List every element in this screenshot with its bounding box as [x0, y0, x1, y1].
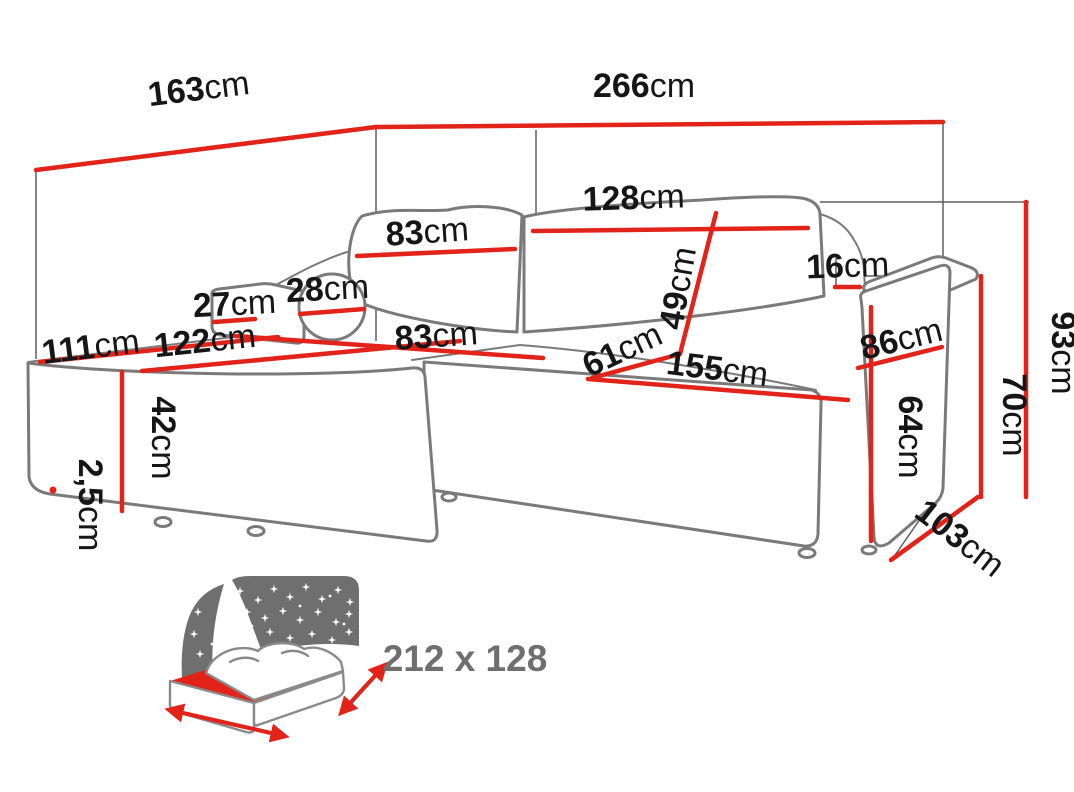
- dimension-unit: cm: [144, 434, 182, 479]
- dimension-value: 28: [285, 270, 325, 310]
- dimension-unit: cm: [721, 351, 771, 394]
- dimension-unit: cm: [891, 433, 929, 478]
- dimension-label-70: 70cm: [995, 373, 1033, 456]
- dimension-value: 64: [891, 395, 929, 433]
- dimension-value: 111: [40, 328, 97, 372]
- sofa-leg: [155, 518, 171, 527]
- dimension-unit: cm: [659, 244, 704, 295]
- dimension-label-163: 163cm: [146, 64, 252, 114]
- dimension-label-83-seat: 83cm: [393, 314, 479, 358]
- dimension-line-163: [36, 127, 376, 170]
- dimension-label-93: 93cm: [1044, 311, 1074, 394]
- dimension-label-28: 28cm: [285, 268, 370, 310]
- dimension-line-128: [533, 228, 808, 231]
- sofa-leg: [442, 493, 456, 501]
- dimension-label-111: 111cm: [40, 322, 142, 372]
- dimension-unit: cm: [431, 314, 479, 355]
- dimension-value: 16: [805, 247, 844, 286]
- dimension-unit: cm: [1044, 349, 1074, 394]
- diagram-canvas: 163cm 266cm 128cm 83cm 49cm 16cm 28cm 27…: [0, 0, 1074, 792]
- dimension-label-83-back: 83cm: [384, 210, 470, 254]
- dimension-unit: cm: [995, 411, 1033, 456]
- sleeping-function-icon: 212 x 128: [170, 576, 547, 736]
- sofa-leg: [799, 549, 815, 558]
- dimension-label-122: 122cm: [152, 317, 257, 365]
- dimension-value: 42: [144, 396, 182, 434]
- dimension-value: 83: [393, 317, 433, 358]
- dimension-value: 83: [384, 213, 424, 254]
- dimension-unit: cm: [323, 268, 370, 308]
- dimension-line-266: [376, 122, 943, 127]
- dimension-label-64: 64cm: [891, 395, 929, 478]
- dimension-value: 128: [582, 179, 640, 219]
- dimension-value: 2,5: [71, 459, 109, 506]
- dimension-value: 155: [664, 344, 725, 389]
- dimension-unit: cm: [650, 67, 695, 105]
- depth-arrow: [342, 666, 384, 712]
- dimension-unit: cm: [71, 506, 109, 551]
- dimension-label-266: 266cm: [593, 67, 695, 105]
- dimension-label-128: 128cm: [582, 177, 685, 219]
- dimension-value: 122: [152, 322, 212, 366]
- bed-size-label: 212 x 128: [383, 638, 548, 679]
- dimension-label-16: 16cm: [805, 246, 889, 287]
- dimension-value: 93: [1044, 311, 1074, 349]
- sofa-leg: [248, 527, 264, 536]
- dimension-value: 49: [652, 288, 696, 332]
- dimension-value: 163: [146, 70, 207, 115]
- dimension-label-42: 42cm: [144, 396, 182, 479]
- dimension-value: 266: [593, 67, 650, 105]
- sofa-dimensions-diagram: 163cm 266cm 128cm 83cm 49cm 16cm 28cm 27…: [0, 0, 1074, 792]
- dimension-unit: cm: [422, 210, 470, 251]
- dimension-unit: cm: [639, 177, 686, 217]
- dimension-unit: cm: [209, 317, 258, 360]
- dimension-unit: cm: [843, 246, 890, 286]
- dimension-value: 70: [995, 373, 1033, 411]
- dimension-unit: cm: [202, 64, 252, 107]
- sofa-leg: [862, 546, 876, 554]
- dimension-label-2-5: 2,5cm: [71, 459, 109, 552]
- dimension-mark-2-5: [50, 487, 57, 494]
- dimension-unit: cm: [92, 322, 142, 365]
- night-sky-panel: [232, 576, 359, 652]
